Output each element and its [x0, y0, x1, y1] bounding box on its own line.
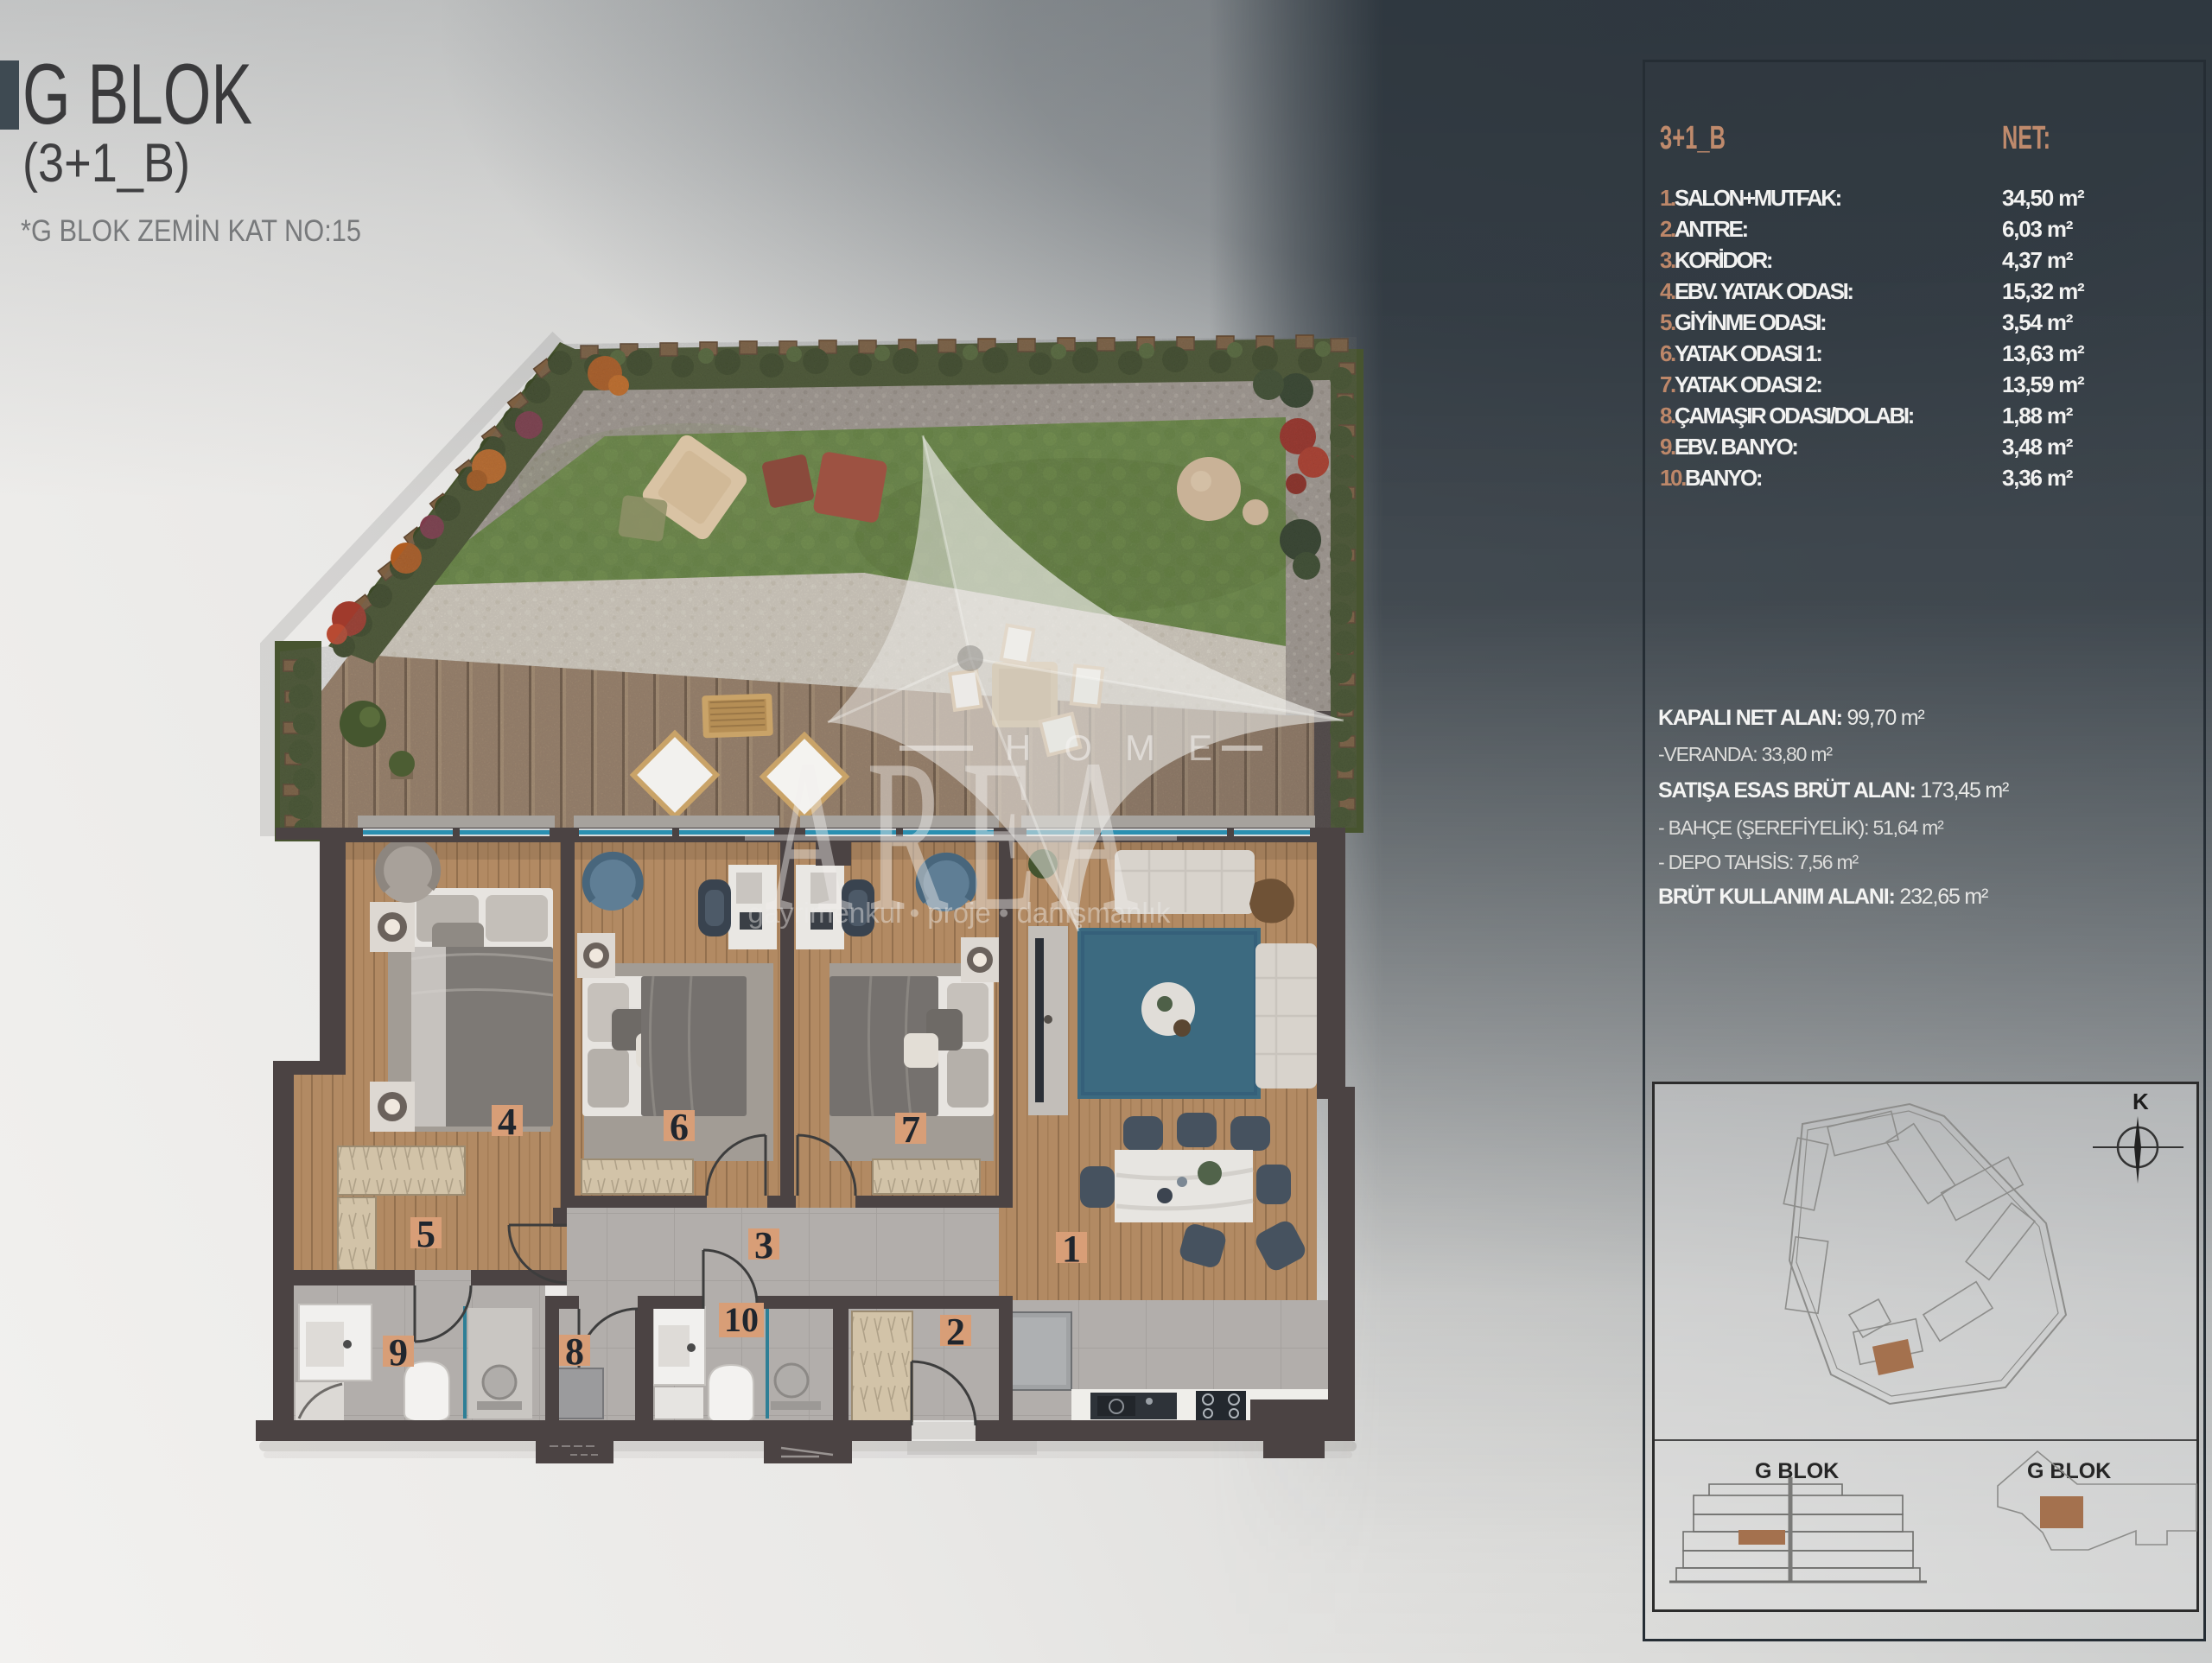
svg-text:10.BANYO:: 10.BANYO: — [1660, 465, 1762, 491]
svg-text:4,37 m²: 4,37 m² — [2002, 247, 2074, 273]
svg-text:5.GİYİNME ODASI:: 5.GİYİNME ODASI: — [1660, 309, 1826, 335]
svg-text:3: 3 — [754, 1224, 773, 1266]
svg-text:SATIŞA ESAS BRÜT ALAN: 173,45: SATIŞA ESAS BRÜT ALAN: 173,45 m² — [1658, 778, 2009, 803]
svg-text:3,48 m²: 3,48 m² — [2002, 434, 2074, 460]
svg-text:3+1_B: 3+1_B — [1660, 120, 1726, 156]
svg-text:9.EBV. BANYO:: 9.EBV. BANYO: — [1660, 434, 1797, 460]
svg-text:6,03 m²: 6,03 m² — [2002, 216, 2074, 242]
svg-text:1,88 m²: 1,88 m² — [2002, 403, 2074, 428]
svg-text:G BLOK: G BLOK — [22, 57, 252, 142]
svg-text:2: 2 — [946, 1311, 965, 1353]
svg-text:9: 9 — [389, 1331, 408, 1374]
svg-text:1: 1 — [1062, 1228, 1081, 1270]
svg-text:7.YATAK ODASI 2:: 7.YATAK ODASI 2: — [1660, 371, 1821, 397]
svg-text:34,50 m²: 34,50 m² — [2002, 185, 2085, 211]
svg-text:-VERANDA: 33,80 m²: -VERANDA: 33,80 m² — [1658, 743, 1833, 765]
svg-text:3.KORİDOR:: 3.KORİDOR: — [1660, 247, 1772, 273]
svg-text:NET:: NET: — [2002, 120, 2050, 156]
svg-text:5: 5 — [416, 1213, 435, 1255]
svg-text:- BAHÇE (ŞEREFİYELİK): 51,64 m: - BAHÇE (ŞEREFİYELİK): 51,64 m² — [1658, 816, 1944, 839]
svg-text:7: 7 — [901, 1108, 920, 1151]
svg-text:BRÜT KULLANIM ALANI: 232,65 m²: BRÜT KULLANIM ALANI: 232,65 m² — [1658, 884, 1988, 909]
svg-text:K: K — [2133, 1089, 2149, 1114]
svg-text:3,36 m²: 3,36 m² — [2002, 465, 2074, 491]
svg-text:4.EBV. YATAK ODASI:: 4.EBV. YATAK ODASI: — [1660, 278, 1853, 304]
svg-text:13,63 m²: 13,63 m² — [2002, 340, 2085, 366]
svg-text:gayrimenkul • proje • danışman: gayrimenkul • proje • danışmanlık — [748, 897, 1171, 929]
svg-text:G BLOK: G BLOK — [1755, 1459, 1839, 1483]
svg-text:13,59 m²: 13,59 m² — [2002, 371, 2085, 397]
svg-text:1.SALON+MUTFAK:: 1.SALON+MUTFAK: — [1660, 185, 1841, 211]
svg-text:*G BLOK ZEMİN KAT NO:15: *G BLOK ZEMİN KAT NO:15 — [21, 214, 361, 248]
svg-text:6: 6 — [670, 1106, 689, 1148]
svg-text:10: 10 — [724, 1300, 759, 1339]
svg-text:4: 4 — [498, 1101, 517, 1143]
svg-text:KAPALI NET ALAN: 99,70 m²: KAPALI NET ALAN: 99,70 m² — [1658, 706, 1924, 730]
svg-text:8: 8 — [565, 1330, 584, 1373]
svg-text:6.YATAK ODASI 1:: 6.YATAK ODASI 1: — [1660, 340, 1821, 366]
svg-text:G BLOK: G BLOK — [2027, 1459, 2111, 1483]
svg-text:2.ANTRE:: 2.ANTRE: — [1660, 216, 1747, 242]
svg-text:3,54 m²: 3,54 m² — [2002, 309, 2074, 335]
svg-text:8.ÇAMAŞIR ODASI/DOLABI:: 8.ÇAMAŞIR ODASI/DOLABI: — [1660, 403, 1914, 428]
svg-text:- DEPO TAHSİS: 7,56 m²: - DEPO TAHSİS: 7,56 m² — [1658, 851, 1859, 873]
svg-text:(3+1_B): (3+1_B) — [22, 133, 190, 194]
svg-text:15,32 m²: 15,32 m² — [2002, 278, 2085, 304]
